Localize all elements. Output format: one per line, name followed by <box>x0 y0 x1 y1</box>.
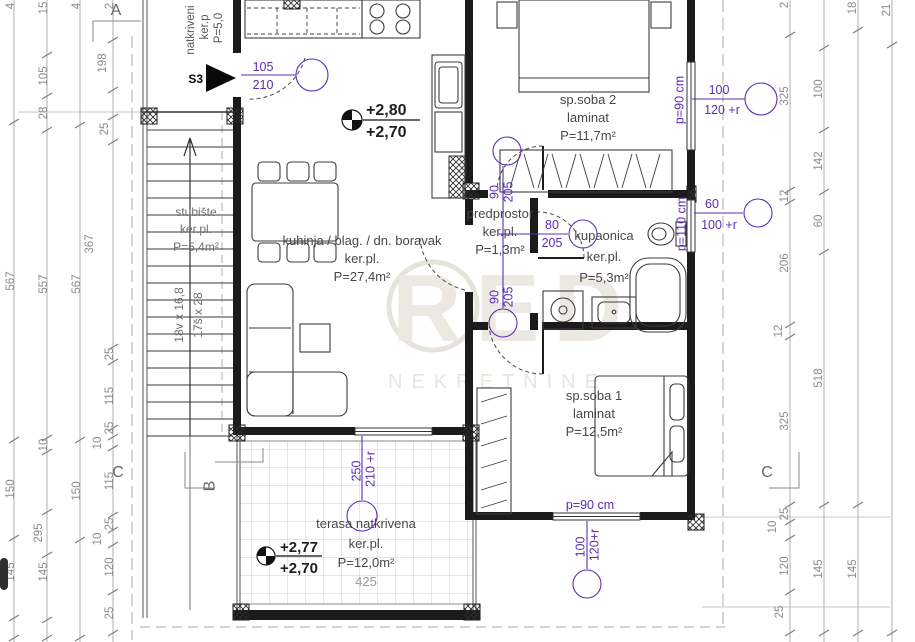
entry-door-height: 210 <box>253 78 274 92</box>
bedroom1-door-width: 90 <box>487 290 501 304</box>
dim: 150 <box>71 481 83 500</box>
dim: 4 <box>71 2 83 9</box>
bedroom2-window <box>687 62 695 150</box>
dim: 4 <box>5 2 17 9</box>
terrace-area: P=12,0m² <box>338 555 395 570</box>
dim: 10 <box>92 437 104 450</box>
terrace-door-width: 250 <box>349 461 363 482</box>
porch-floor: ker.p <box>199 15 211 40</box>
porch-name: natkriveni <box>185 5 197 54</box>
dim: 100 <box>813 79 825 98</box>
dim: 367 <box>84 234 96 253</box>
living-elevation: +2,80 +2,70 <box>342 102 420 141</box>
hall-floor: ker.pl. <box>483 224 518 239</box>
bathroom-door-width: 80 <box>545 218 559 232</box>
bathtub <box>630 258 686 332</box>
wardrobe1 <box>477 388 511 514</box>
living-floor: ker.pl. <box>345 251 380 266</box>
dim: 567 <box>71 274 83 293</box>
bedroom2-floor: laminat <box>567 110 609 125</box>
dims-left: 4 567 150 145 15 105 28 557 10 295 145 4… <box>5 2 116 620</box>
dim: 325 <box>779 411 791 430</box>
bathroom-window-height: 100 +r <box>701 218 737 232</box>
hall-name: predprostor <box>467 206 534 221</box>
terrace-floor: ker.pl. <box>349 536 384 551</box>
dim: 28 <box>38 107 50 120</box>
kitchen-counter <box>245 0 465 198</box>
dim: 150 <box>5 479 17 498</box>
dim: 25 <box>104 348 116 361</box>
s3-label: S3 <box>188 72 203 86</box>
bathroom-name: kupaonica <box>574 228 634 243</box>
terrace-bottom-wall <box>233 610 480 620</box>
dim: 12 <box>779 190 791 203</box>
dim: 120 <box>779 556 791 575</box>
living-name: kuhinja / blag. / dn. boravak <box>283 233 442 248</box>
dim: 145 <box>847 559 859 578</box>
terrace-elevation-top: +2,77 <box>280 539 318 556</box>
dim: 10 <box>92 533 104 546</box>
dim: 145 <box>38 562 50 581</box>
plan-svg: RED NEKRETNINE 4 567 150 145 15 105 28 5… <box>0 0 915 642</box>
terrace-name: terasa natkrivena <box>316 516 416 531</box>
bedroom2-window-width: 100 <box>709 83 730 97</box>
bedroom2-door-height: 205 <box>501 182 515 203</box>
bedroom1-floor: laminat <box>573 406 615 421</box>
hall-area: P=1,3m² <box>475 242 525 257</box>
dim: 2 <box>779 2 791 8</box>
stair-direction-arrow <box>184 138 196 436</box>
dim: 15 <box>38 2 50 15</box>
dim: 25 <box>774 606 786 619</box>
nightstand <box>651 2 671 28</box>
terrace-door-glyph <box>355 428 432 435</box>
dim: 518 <box>813 368 825 387</box>
bathroom-window-width: 60 <box>705 197 719 211</box>
living-area: P=27,4m² <box>334 269 391 284</box>
sofa <box>247 284 347 416</box>
terrace-elevation-bottom: +2,70 <box>280 560 318 577</box>
dim: 145 <box>813 559 825 578</box>
dim: 10 <box>767 521 779 534</box>
dim: 198 <box>97 53 109 72</box>
living-elevation-top: +2,80 <box>366 102 407 119</box>
bathroom-area: P=5,3m² <box>579 270 629 285</box>
wardrobe2 <box>500 150 672 192</box>
entry-door-width: 105 <box>253 60 274 74</box>
bathroom-door-height: 205 <box>542 236 563 250</box>
stairs-area: P=5,4m² <box>173 240 219 254</box>
bedroom2-door-width: 90 <box>487 185 501 199</box>
dim: 567 <box>5 271 17 290</box>
stairs-treads: 17š x 28 <box>191 292 205 338</box>
terrace-door-height: 210 +r <box>363 451 377 487</box>
dim: 12 <box>773 325 785 338</box>
dim: 105 <box>38 66 50 85</box>
side-table <box>300 324 330 352</box>
dim: 18 <box>847 2 859 15</box>
bedroom1-window-width: 100 <box>573 537 587 558</box>
bedroom2-area: P=11,7m² <box>560 128 616 143</box>
dim: 25 <box>104 422 116 435</box>
dim: 21 <box>881 4 893 17</box>
dim: 142 <box>813 151 825 170</box>
stairs-name: stubište <box>175 205 217 219</box>
dim: 295 <box>33 523 45 542</box>
edge-artifact <box>0 558 8 590</box>
dim: 557 <box>38 274 50 293</box>
dim: 25 <box>99 123 111 136</box>
section-marker-b: B <box>202 481 219 492</box>
stairs-floor: ker.pl. <box>180 222 212 236</box>
nightstand <box>497 2 517 28</box>
porch-area: P=5,0 <box>213 13 225 43</box>
dim: 25 <box>104 607 116 620</box>
bathroom-floor: ker.pl. <box>587 249 622 264</box>
dim: 206 <box>779 253 791 272</box>
bedroom1-name: sp.soba 1 <box>566 388 622 403</box>
pillow <box>670 384 684 420</box>
bedroom2-name: sp.soba 2 <box>560 92 616 107</box>
stairs-risers: 18v x 16,8 <box>172 287 186 343</box>
bedroom1-window-sill: p=90 cm <box>566 498 614 512</box>
section-marker-a: A <box>111 2 122 19</box>
staircase <box>143 0 233 618</box>
terrace-width: 425 <box>355 574 377 589</box>
bed room1-area: P=12,5m² <box>566 424 623 439</box>
dim: 10 <box>38 439 50 452</box>
bedroom1-window <box>553 513 640 520</box>
stove <box>362 0 420 38</box>
bedroom1-door-height: 205 <box>501 287 515 308</box>
s3-triangle-icon <box>206 64 236 92</box>
section-marker-c-left: C <box>112 464 124 481</box>
bedroom2-window-sill: p=90 cm <box>672 76 686 124</box>
blanket-fold <box>652 452 672 476</box>
dim: 25 <box>104 518 116 531</box>
dim: 115 <box>104 387 116 405</box>
dims-right: 2 325 12 206 12 325 25 10 120 25 100 142… <box>767 2 893 619</box>
section-marker-c-right: C <box>761 464 773 481</box>
bedroom1-window-height: 120+r <box>587 529 601 561</box>
dim: 325 <box>779 86 791 105</box>
dim: 60 <box>813 215 825 228</box>
floor-plan-drawing: RED NEKRETNINE 4 567 150 145 15 105 28 5… <box>0 0 915 642</box>
dim: 25 <box>779 508 791 521</box>
dim: 120 <box>104 557 116 576</box>
bedroom2-window-height: 120 +r <box>704 103 740 117</box>
living-elevation-bottom: +2,70 <box>366 124 407 141</box>
bathroom-window-sill: p=110 cm <box>674 197 688 251</box>
